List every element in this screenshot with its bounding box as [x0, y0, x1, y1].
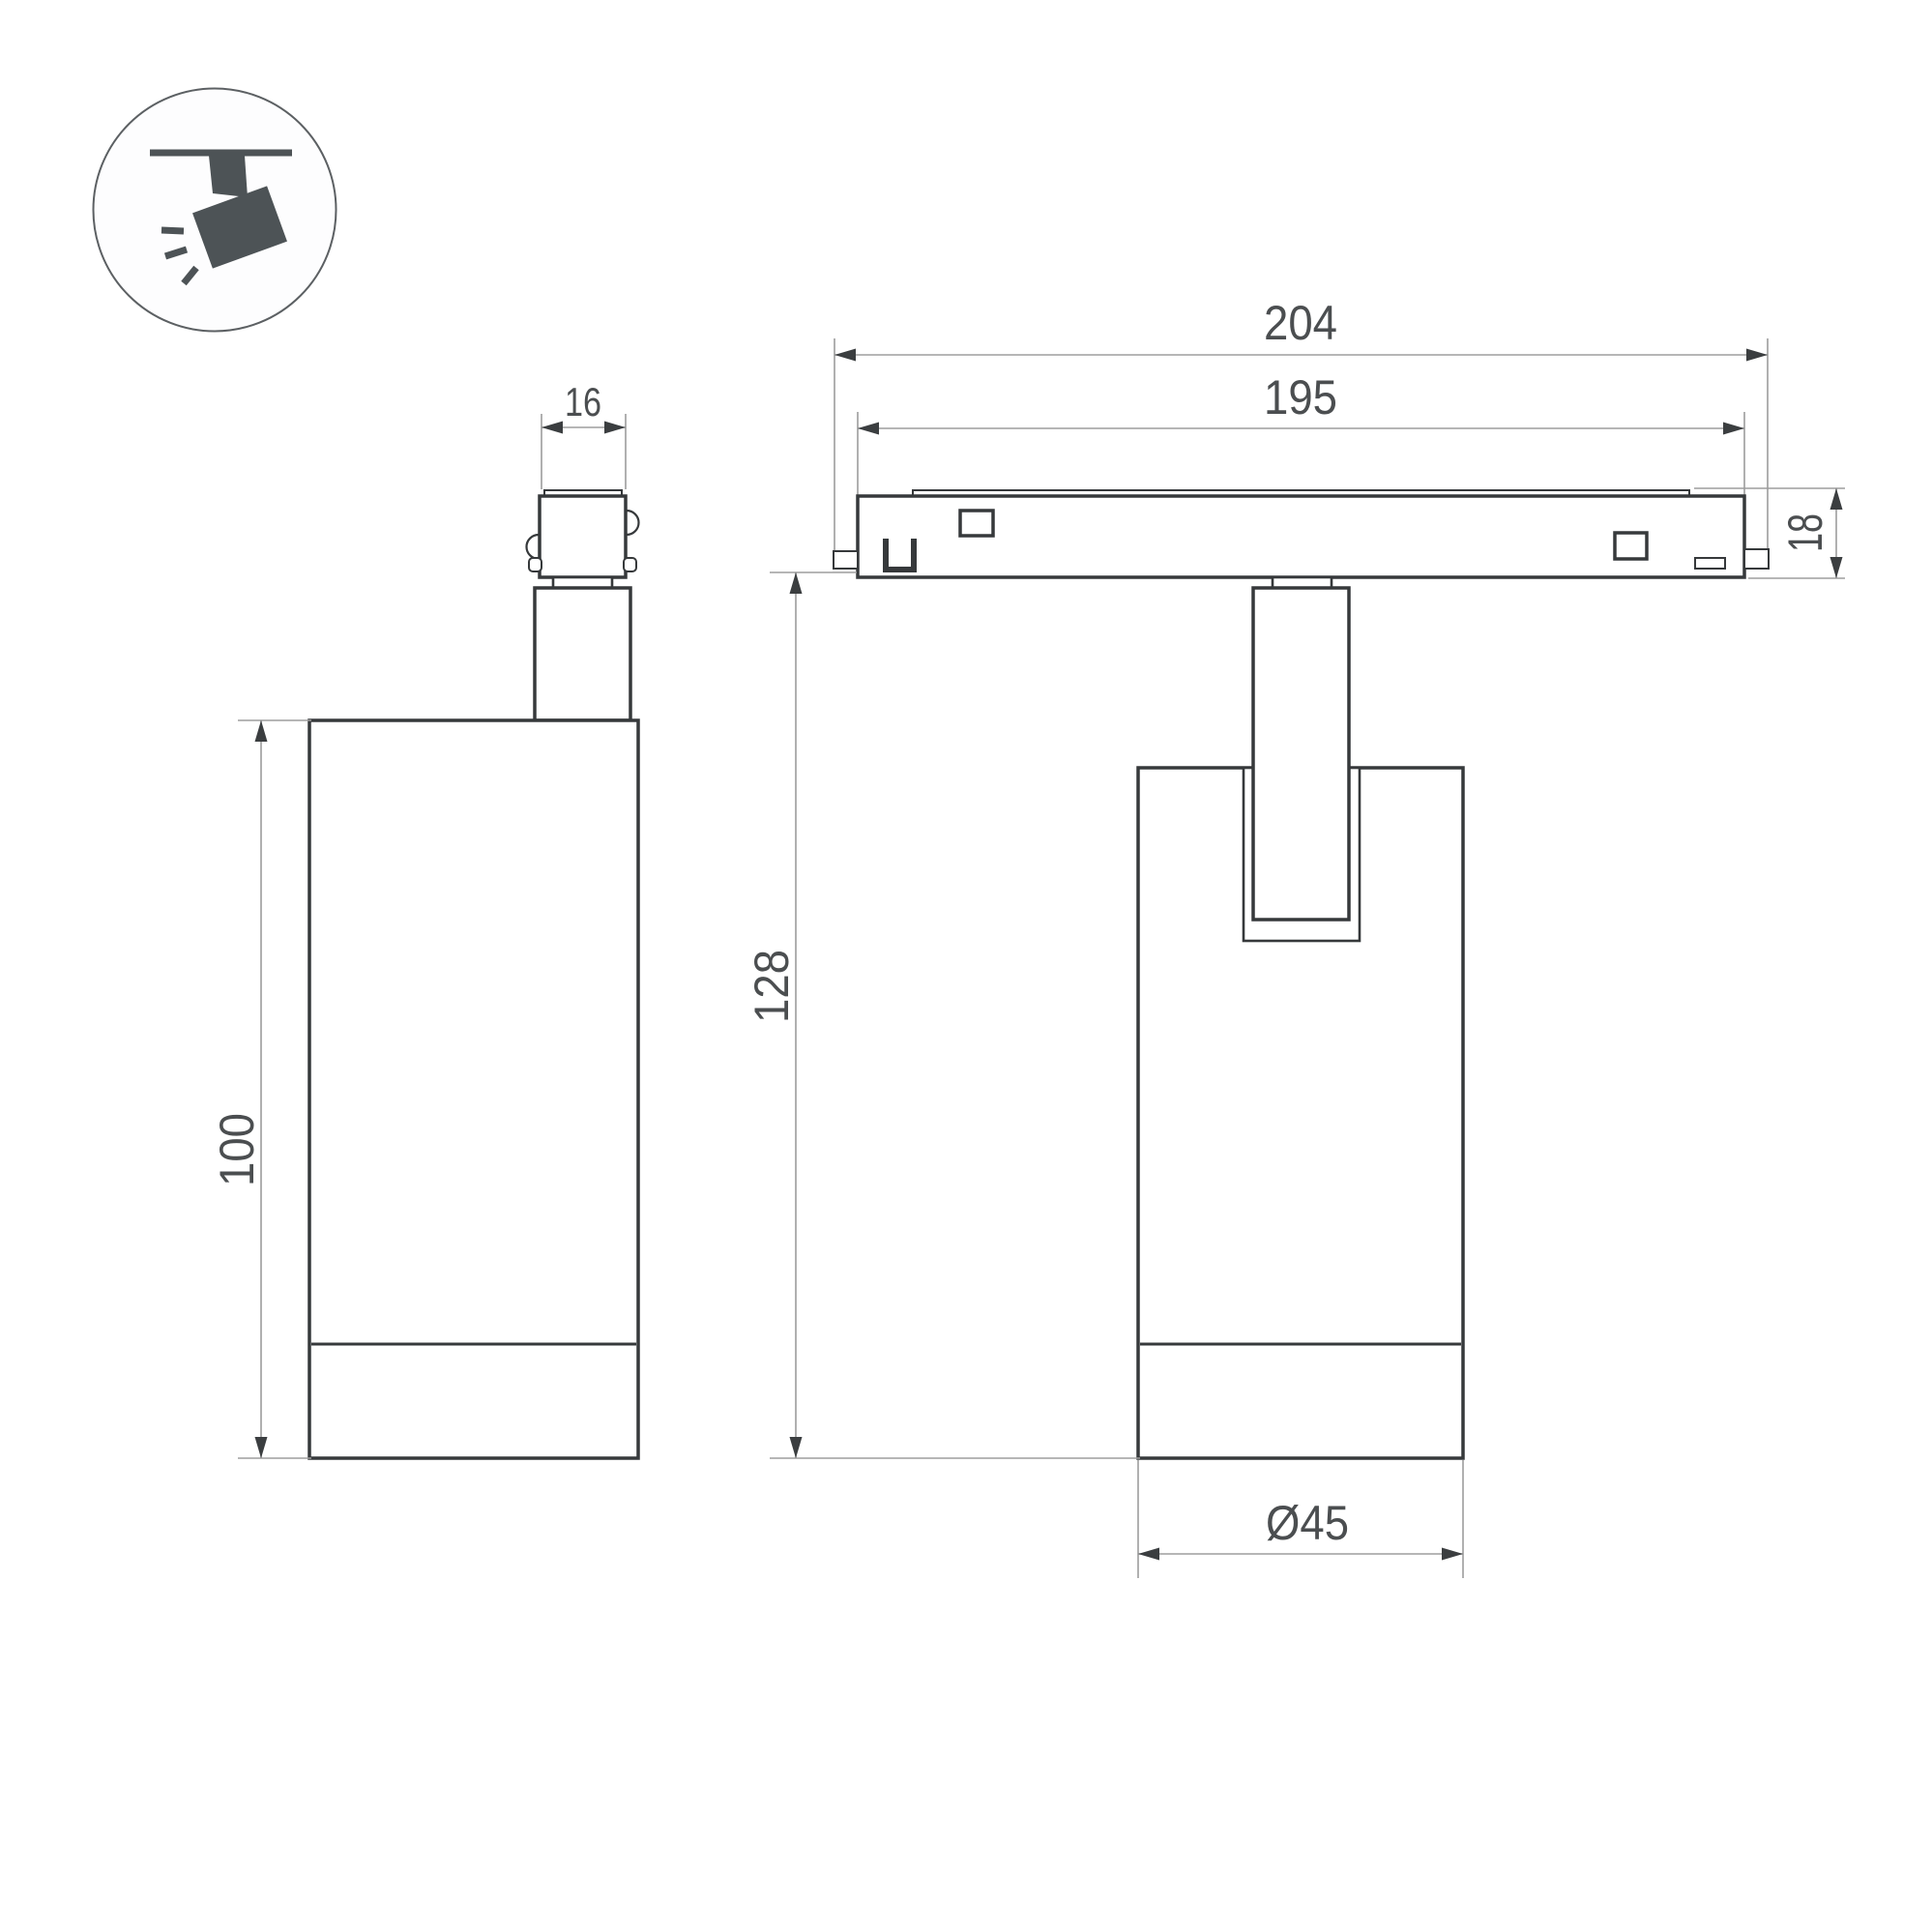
arrowhead-left — [1138, 1548, 1159, 1561]
front-stem — [1253, 588, 1349, 920]
track-end-tab-right — [1744, 549, 1769, 569]
arrowhead-down — [790, 1437, 803, 1458]
dim-label-16: 16 — [565, 379, 601, 424]
dim-label-204: 204 — [1264, 296, 1337, 350]
track-end-tab-left — [834, 551, 858, 569]
front-track — [834, 490, 1769, 577]
track-window-left — [960, 511, 993, 536]
arrowhead-down — [255, 1437, 268, 1458]
side-stem — [535, 588, 630, 720]
side-track-adapter — [527, 490, 639, 588]
ceiling-track-spotlight-icon — [94, 89, 337, 332]
dimension-drawing: 16 100 — [0, 0, 1932, 1932]
adapter-clip-left — [527, 535, 540, 559]
dim-label-128: 128 — [745, 950, 799, 1023]
arrowhead-down — [1830, 557, 1843, 578]
dim-label-diameter-45: Ø45 — [1266, 1496, 1349, 1550]
arrowhead-right — [1746, 349, 1768, 362]
adapter-tab-right — [624, 558, 636, 571]
arrowhead-right — [1723, 423, 1744, 435]
arrowhead-left — [834, 349, 856, 362]
arrowhead-right — [1442, 1548, 1463, 1561]
icon-ceiling-bar — [150, 150, 292, 157]
arrowhead-left — [858, 423, 879, 435]
side-lamp-body — [309, 720, 638, 1458]
dim-label-100: 100 — [210, 1113, 264, 1186]
adapter-body — [540, 496, 626, 577]
dim-label-195: 195 — [1264, 370, 1337, 424]
arrowhead-left — [542, 422, 563, 434]
dimension-body-height: 100 — [210, 720, 311, 1458]
icon-track-stem — [209, 156, 248, 197]
dimension-track-inner: 195 — [858, 370, 1744, 496]
arrowhead-right — [604, 422, 626, 434]
adapter-clip-right — [627, 511, 639, 535]
arrowhead-up — [790, 572, 803, 594]
dimension-overall-height: 128 — [745, 572, 1140, 1458]
front-view: 204 195 18 — [745, 296, 1845, 1578]
dim-label-18: 18 — [1778, 513, 1832, 552]
dimension-adapter-width: 16 — [542, 379, 626, 489]
arrowhead-up — [1830, 488, 1843, 510]
arrowhead-up — [255, 720, 268, 742]
side-view: 16 100 — [210, 379, 639, 1458]
track-window-right — [1615, 533, 1647, 559]
track-slot-small — [1695, 558, 1725, 569]
dimension-body-diameter: Ø45 — [1138, 1460, 1463, 1578]
icon-light-ray-1 — [161, 230, 184, 231]
drawing-canvas: 16 100 — [0, 0, 1932, 1932]
adapter-tab-left — [529, 558, 542, 571]
